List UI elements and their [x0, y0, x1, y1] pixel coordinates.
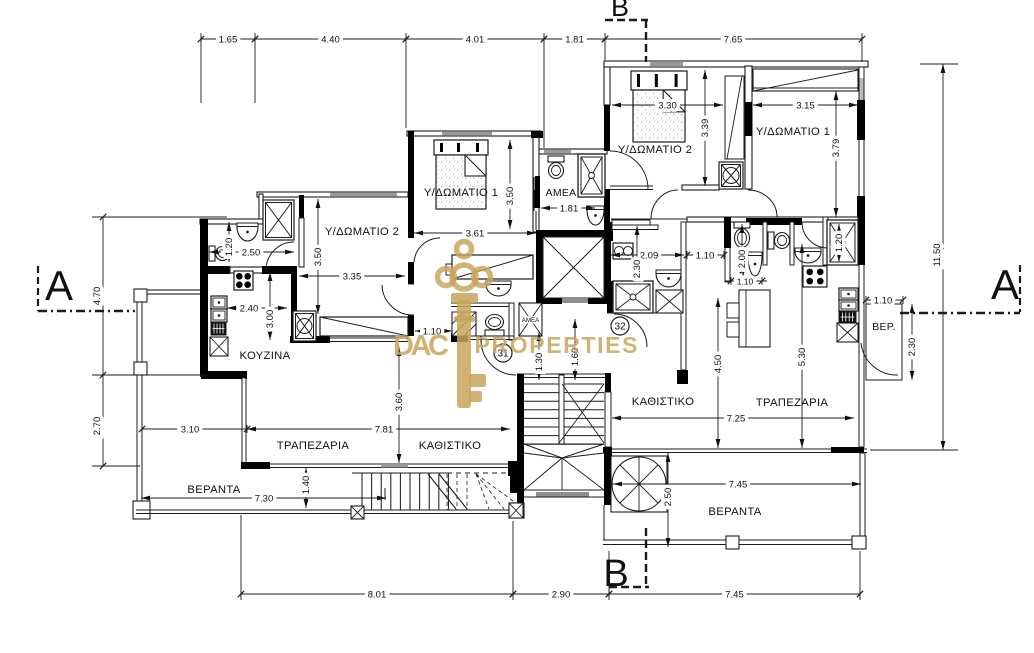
- svg-text:4.50: 4.50: [713, 355, 724, 374]
- svg-text:ΤΡΑΠΕΖΑΡΙΑ: ΤΡΑΠΕΖΑΡΙΑ: [756, 397, 829, 409]
- svg-text:7.45: 7.45: [729, 479, 748, 490]
- svg-text:1.20: 1.20: [224, 238, 235, 257]
- svg-text:ΚΑΘΙΣΤΙΚΟ: ΚΑΘΙΣΤΙΚΟ: [419, 440, 481, 452]
- svg-text:2.40: 2.40: [240, 303, 259, 314]
- svg-text:ΒΕΡΑΝΤΑ: ΒΕΡΑΝΤΑ: [708, 506, 761, 518]
- svg-text:3.79: 3.79: [831, 139, 842, 158]
- svg-text:1.10: 1.10: [737, 276, 754, 286]
- svg-text:3.50: 3.50: [313, 248, 324, 267]
- svg-text:2.90: 2.90: [552, 589, 571, 600]
- svg-text:1.81: 1.81: [560, 203, 579, 214]
- svg-text:3.35: 3.35: [343, 271, 362, 282]
- svg-text:Υ/ΔΩΜΑΤΙΟ 1: Υ/ΔΩΜΑΤΙΟ 1: [756, 126, 830, 138]
- svg-text:1.65: 1.65: [219, 34, 238, 45]
- svg-text:Υ/ΔΩΜΑΤΙΟ 2: Υ/ΔΩΜΑΤΙΟ 2: [618, 144, 692, 156]
- svg-text:Υ/ΔΩΜΑΤΙΟ 2: Υ/ΔΩΜΑΤΙΟ 2: [325, 226, 399, 238]
- svg-text:3.10: 3.10: [181, 424, 200, 435]
- svg-text:B: B: [611, 0, 629, 22]
- svg-text:2.00: 2.00: [737, 250, 748, 269]
- svg-text:ΚΟΥΖΙΝΑ: ΚΟΥΖΙΝΑ: [240, 350, 291, 362]
- svg-text:2.70: 2.70: [92, 417, 103, 436]
- svg-text:4.01: 4.01: [466, 34, 485, 45]
- svg-text:7.25: 7.25: [727, 413, 746, 424]
- svg-text:32: 32: [614, 321, 626, 332]
- svg-text:1.40: 1.40: [301, 476, 312, 495]
- svg-text:ΤΡΑΠΕΖΑΡΙΑ: ΤΡΑΠΕΖΑΡΙΑ: [277, 440, 350, 452]
- svg-text:AMEA: AMEA: [522, 317, 540, 324]
- svg-text:2.30: 2.30: [632, 260, 643, 279]
- svg-text:DAC: DAC: [393, 330, 449, 362]
- svg-text:B: B: [603, 553, 628, 595]
- svg-text:ΒΕΡΑΝΤΑ: ΒΕΡΑΝΤΑ: [187, 484, 240, 496]
- svg-text:2.30: 2.30: [907, 338, 918, 357]
- svg-text:3.39: 3.39: [700, 119, 711, 138]
- svg-text:3.30: 3.30: [658, 100, 677, 111]
- svg-text:2.50: 2.50: [663, 488, 674, 507]
- svg-text:7.45: 7.45: [725, 589, 744, 600]
- svg-text:A: A: [991, 261, 1019, 308]
- svg-text:A: A: [45, 262, 73, 309]
- svg-text:1.81: 1.81: [565, 34, 584, 45]
- svg-text:ΚΑΘΙΣΤΙΚΟ: ΚΑΘΙΣΤΙΚΟ: [632, 396, 694, 408]
- svg-text:3.50: 3.50: [505, 187, 516, 206]
- svg-text:2.50: 2.50: [242, 247, 261, 258]
- svg-text:3.00: 3.00: [265, 310, 276, 329]
- svg-text:5.30: 5.30: [797, 348, 808, 367]
- svg-text:Υ/ΔΩΜΑΤΙΟ 1: Υ/ΔΩΜΑΤΙΟ 1: [424, 187, 498, 199]
- svg-text:1.10: 1.10: [696, 250, 715, 261]
- svg-text:1.20: 1.20: [834, 234, 845, 253]
- svg-text:4.70: 4.70: [92, 287, 103, 306]
- svg-text:7.30: 7.30: [255, 493, 274, 504]
- svg-text:3.61: 3.61: [466, 228, 485, 239]
- svg-text:7.81: 7.81: [375, 424, 394, 435]
- svg-text:3.15: 3.15: [796, 100, 815, 111]
- svg-text:4.40: 4.40: [321, 34, 340, 45]
- svg-text:1.10: 1.10: [874, 295, 893, 306]
- svg-text:ΑΜΕΑ: ΑΜΕΑ: [546, 187, 577, 199]
- svg-text:8.01: 8.01: [368, 589, 387, 600]
- svg-text:7.65: 7.65: [724, 34, 743, 45]
- svg-text:ΒΕΡ.: ΒΕΡ.: [872, 321, 895, 333]
- svg-text:3.60: 3.60: [394, 393, 405, 412]
- svg-text:PROPERTIES: PROPERTIES: [475, 332, 638, 358]
- svg-text:11.50: 11.50: [932, 243, 943, 266]
